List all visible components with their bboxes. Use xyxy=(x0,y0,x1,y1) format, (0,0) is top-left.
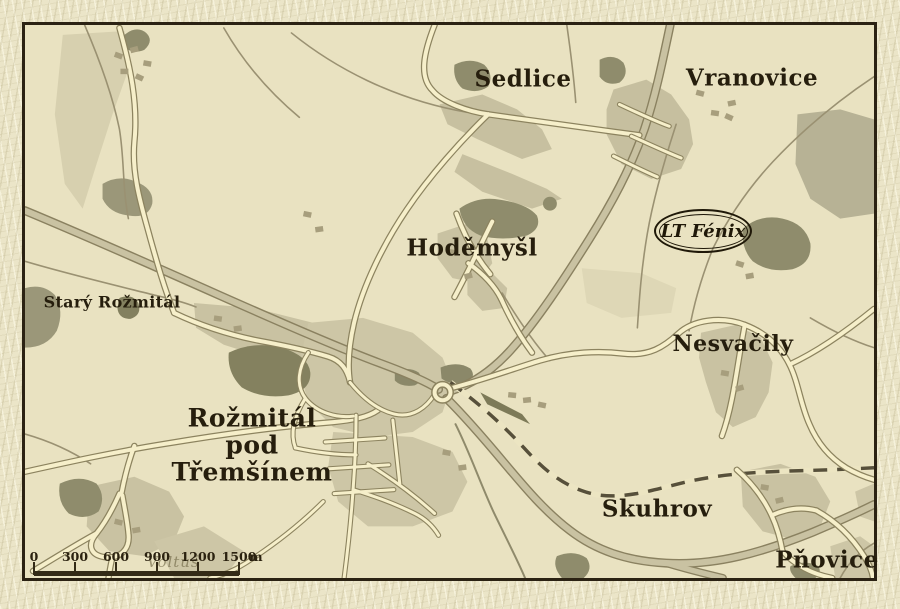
scale-bar-tick xyxy=(115,562,118,575)
scale-bar-line xyxy=(34,571,239,576)
map-frame: Voltuš Sedlice Vranovice Hoděmyšl Starý … xyxy=(22,22,877,581)
lt-fenix-label: LT Fénix xyxy=(661,221,746,242)
map-artwork xyxy=(25,25,874,578)
scale-bar-tick xyxy=(156,562,159,575)
scale-bar-tick xyxy=(33,562,36,575)
scale-bar-tick xyxy=(74,562,77,575)
lt-fenix-marker: LT Fénix xyxy=(654,209,752,253)
fields-layer xyxy=(55,31,874,578)
scale-bar-tick xyxy=(238,562,241,575)
scale-bar: 0 300 600 900 1200 1500 m xyxy=(28,549,268,583)
scale-bar-tick xyxy=(197,562,200,575)
parchment-page: Voltuš Sedlice Vranovice Hoděmyšl Starý … xyxy=(0,0,900,609)
scale-unit-label: m xyxy=(249,549,262,564)
